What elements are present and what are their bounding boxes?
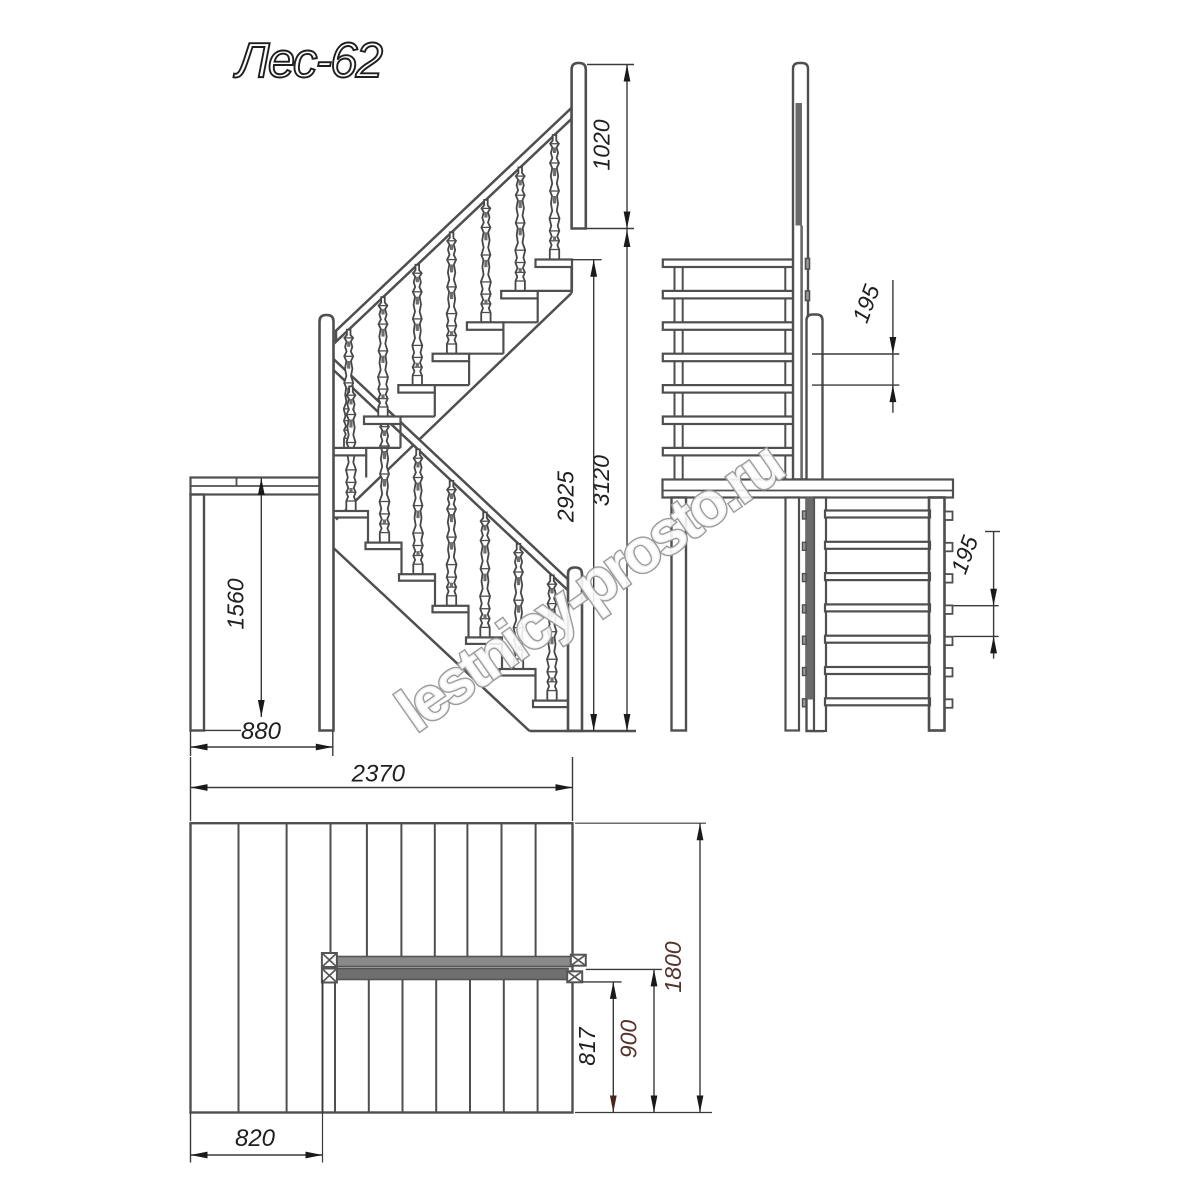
svg-text:Лес-62: Лес-62 — [233, 34, 383, 88]
svg-text:1560: 1560 — [223, 578, 249, 629]
svg-text:820: 820 — [235, 1125, 276, 1152]
svg-text:880: 880 — [241, 718, 282, 745]
svg-text:2370: 2370 — [351, 761, 406, 788]
svg-text:817: 817 — [574, 1026, 600, 1066]
svg-text:2925: 2925 — [553, 471, 579, 523]
svg-text:3120: 3120 — [588, 455, 614, 506]
svg-text:1020: 1020 — [588, 119, 614, 170]
svg-text:900: 900 — [615, 1020, 641, 1059]
svg-text:1800: 1800 — [660, 941, 686, 992]
